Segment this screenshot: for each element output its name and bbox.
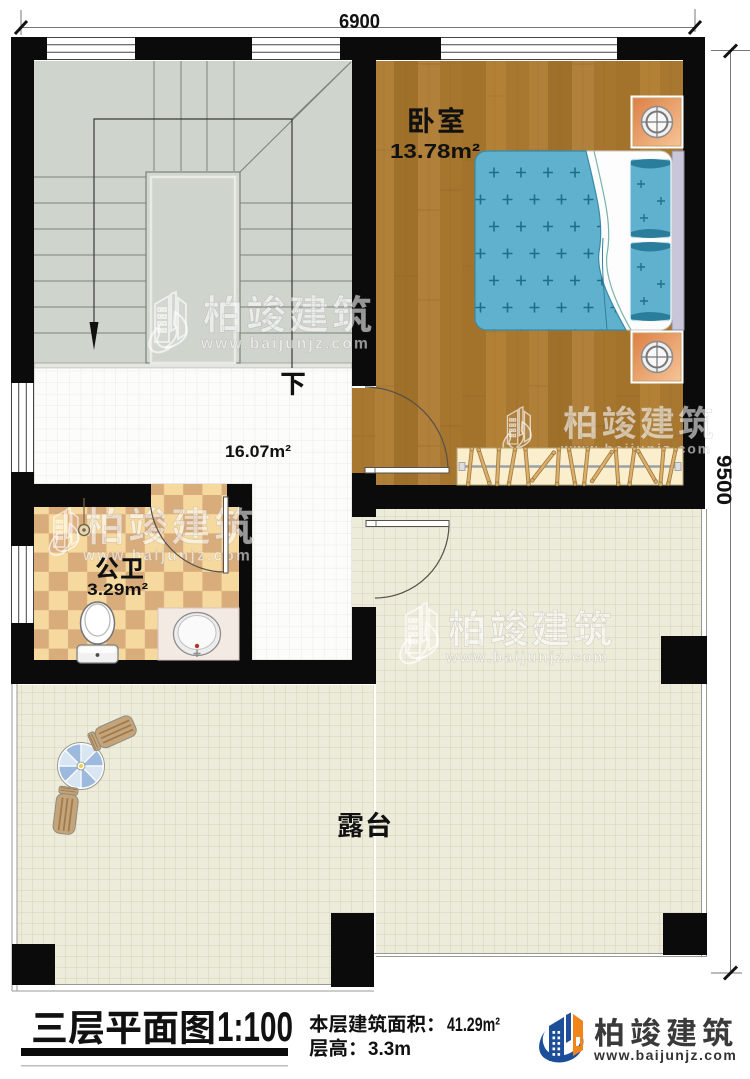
svg-text:6900: 6900 [339,11,380,33]
svg-text:www.baijunjz.com: www.baijunjz.com [593,1047,737,1063]
svg-text:16.07m²: 16.07m² [225,442,291,461]
svg-text:1:100: 1:100 [217,1003,293,1050]
svg-text:41.29m²: 41.29m² [447,1015,500,1036]
svg-text:9500: 9500 [712,455,735,505]
svg-text:www.baijunjz.com: www.baijunjz.com [445,649,609,666]
svg-text:3.3m: 3.3m [368,1039,411,1060]
svg-text:3.29m²: 3.29m² [87,580,148,599]
svg-text:www.baijunjz.com: www.baijunjz.com [200,336,370,353]
svg-text:13.78m²: 13.78m² [390,141,480,163]
